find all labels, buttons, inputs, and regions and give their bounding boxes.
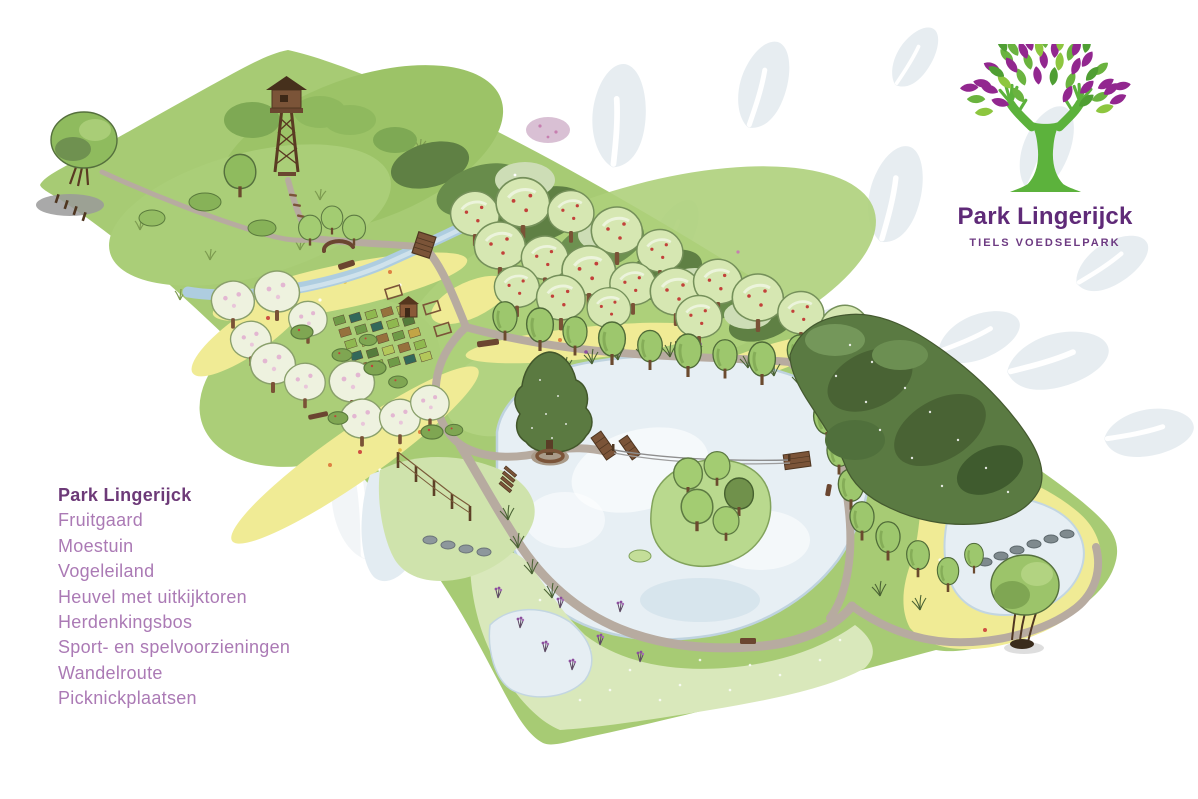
logo-tagline: TIELS VOEDSELPARK xyxy=(928,237,1162,249)
legend-item-herdenkingsbos: Herdenkingsbos xyxy=(58,610,290,635)
legend-item-wandelroute: Wandelroute xyxy=(58,661,290,686)
logo-tree-icon xyxy=(958,44,1133,192)
logo-park-lingerijck: Park Lingerijck TIELS VOEDSELPARK xyxy=(928,44,1162,249)
legend-item-picknickplaatsen: Picknickplaatsen xyxy=(58,686,290,711)
legend: Park Lingerijck Fruitgaard Moestuin Voge… xyxy=(58,483,290,712)
logo-tree-trunk xyxy=(1009,121,1080,192)
legend-item-vogeleiland: Vogeleiland xyxy=(58,559,290,584)
legend-item-heuvel-met-uitkijktoren: Heuvel met uitkijktoren xyxy=(58,585,290,610)
park-map-page: Park Lingerijck Fruitgaard Moestuin Voge… xyxy=(0,0,1198,799)
legend-title: Park Lingerijck xyxy=(58,483,290,508)
logo-tree-leaves xyxy=(959,44,1130,116)
logo-name: Park Lingerijck xyxy=(928,203,1162,231)
legend-item-moestuin: Moestuin xyxy=(58,534,290,559)
legend-item-fruitgaard: Fruitgaard xyxy=(58,508,290,533)
legend-item-sport-en-spelvoorzieningen: Sport- en spelvoorzieningen xyxy=(58,635,290,660)
